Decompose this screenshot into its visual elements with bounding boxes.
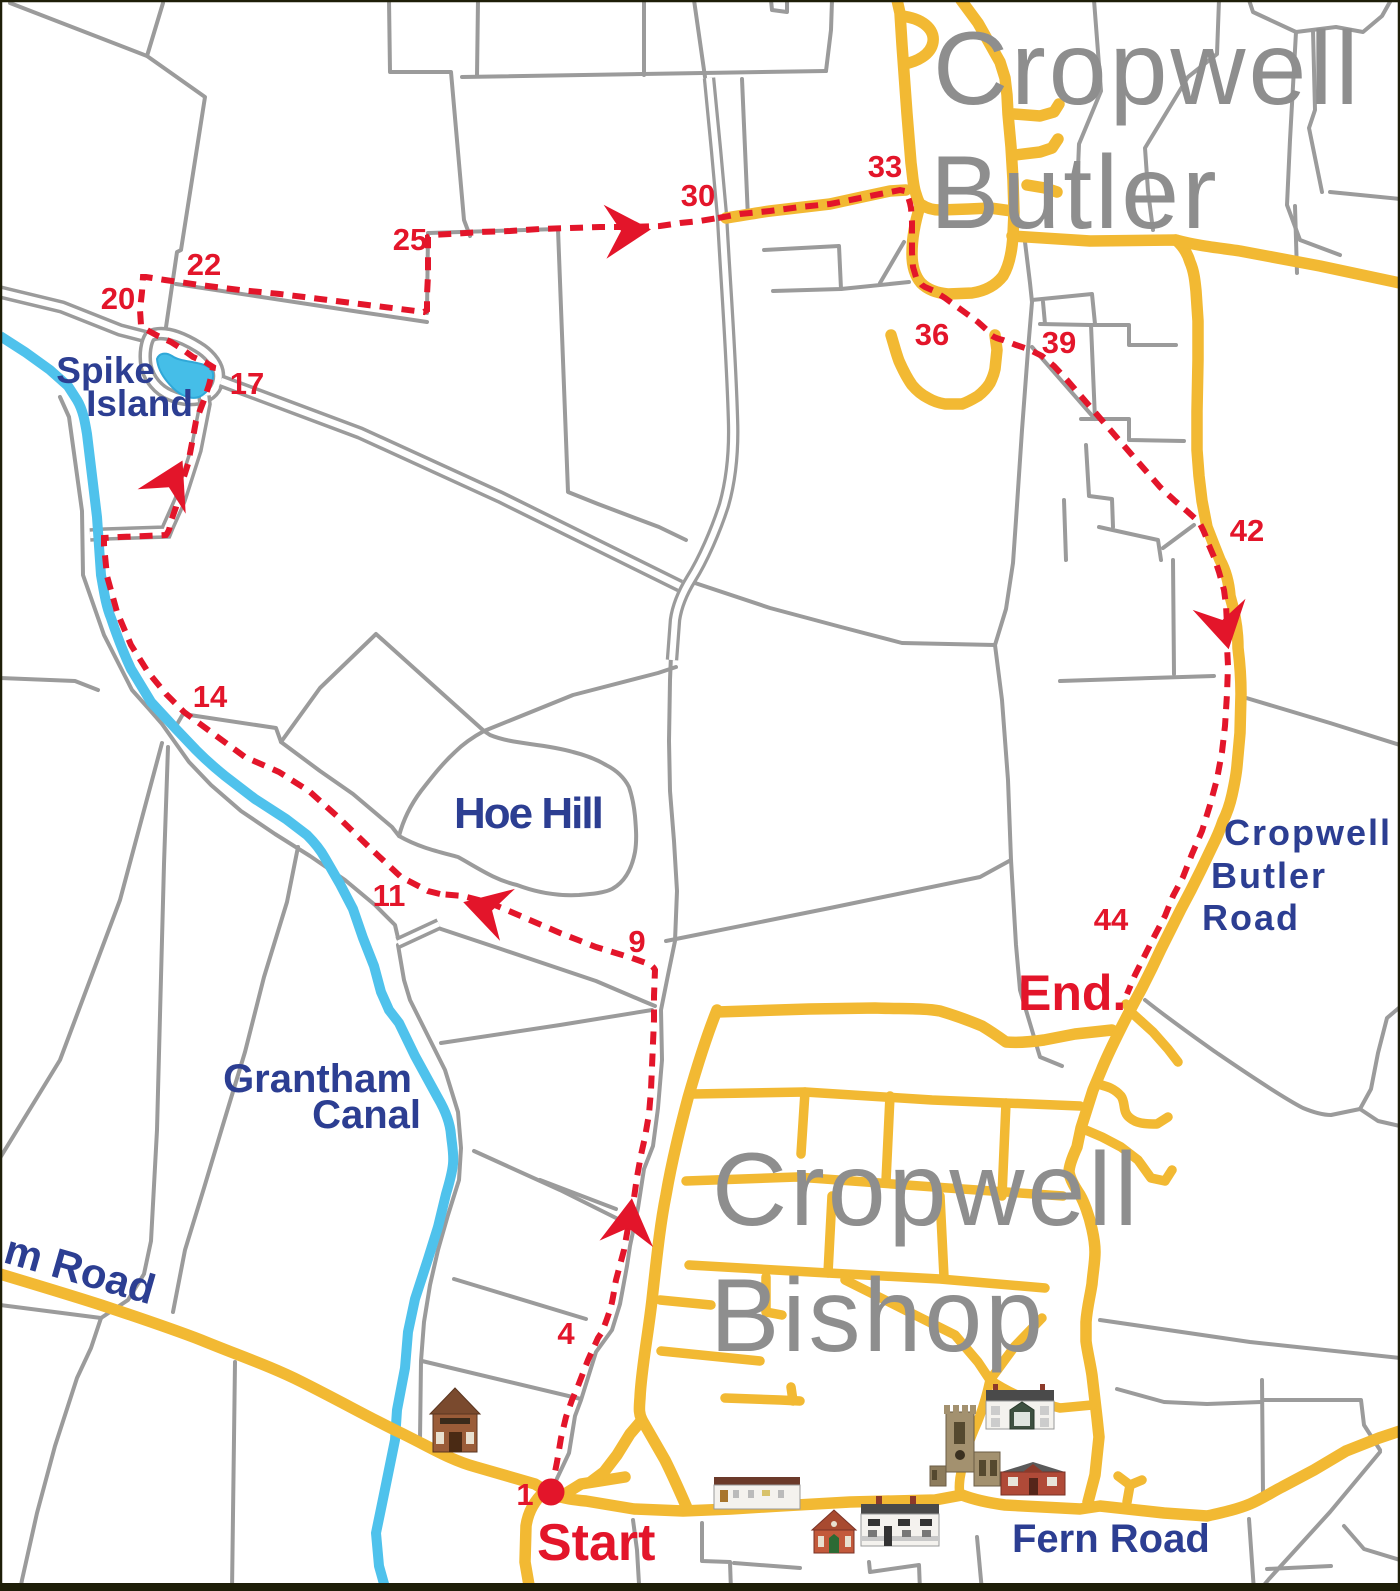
svg-text:14: 14 bbox=[193, 679, 228, 714]
svg-text:Butler: Butler bbox=[1211, 855, 1327, 896]
svg-text:42: 42 bbox=[1230, 513, 1264, 548]
svg-text:11: 11 bbox=[373, 878, 406, 913]
svg-text:Hoe Hill: Hoe Hill bbox=[454, 789, 602, 838]
svg-text:Fern Road: Fern Road bbox=[1012, 1517, 1210, 1561]
svg-text:Start: Start bbox=[537, 1514, 655, 1572]
svg-text:44: 44 bbox=[1094, 902, 1129, 937]
svg-text:30: 30 bbox=[681, 178, 715, 213]
svg-text:20: 20 bbox=[101, 281, 135, 316]
svg-text:Bishop: Bishop bbox=[710, 1258, 1046, 1374]
svg-text:Cropwell: Cropwell bbox=[1224, 812, 1392, 853]
svg-text:Road: Road bbox=[1202, 897, 1300, 938]
svg-text:Butler: Butler bbox=[930, 135, 1220, 251]
svg-text:39: 39 bbox=[1042, 325, 1076, 360]
svg-text:Cropwell: Cropwell bbox=[933, 11, 1362, 127]
svg-text:Canal: Canal bbox=[312, 1093, 421, 1137]
svg-text:9: 9 bbox=[628, 924, 645, 959]
svg-text:17: 17 bbox=[230, 366, 264, 401]
svg-text:Cropwell: Cropwell bbox=[712, 1132, 1141, 1248]
svg-text:22: 22 bbox=[187, 247, 221, 282]
svg-text:Island: Island bbox=[86, 383, 193, 424]
svg-text:4: 4 bbox=[557, 1316, 575, 1351]
svg-text:End.: End. bbox=[1018, 965, 1126, 1021]
svg-text:36: 36 bbox=[915, 317, 949, 352]
svg-text:33: 33 bbox=[868, 149, 902, 184]
svg-text:25: 25 bbox=[393, 222, 427, 257]
svg-text:1: 1 bbox=[516, 1477, 533, 1512]
